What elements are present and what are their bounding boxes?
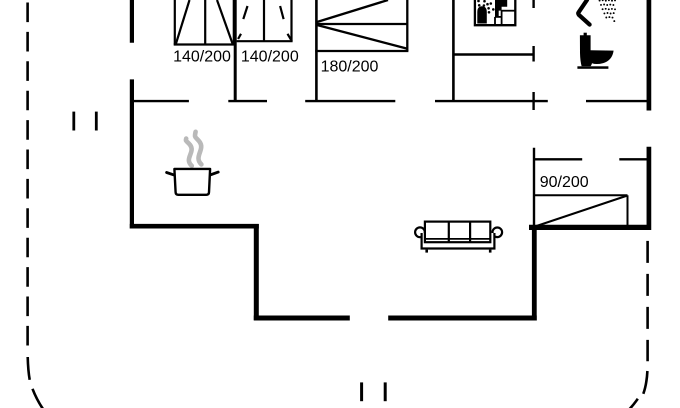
svg-text:140/200: 140/200 bbox=[241, 49, 299, 66]
svg-text:90/200: 90/200 bbox=[540, 174, 589, 191]
svg-text:140/200: 140/200 bbox=[173, 49, 231, 66]
svg-text:180/200: 180/200 bbox=[321, 59, 379, 76]
